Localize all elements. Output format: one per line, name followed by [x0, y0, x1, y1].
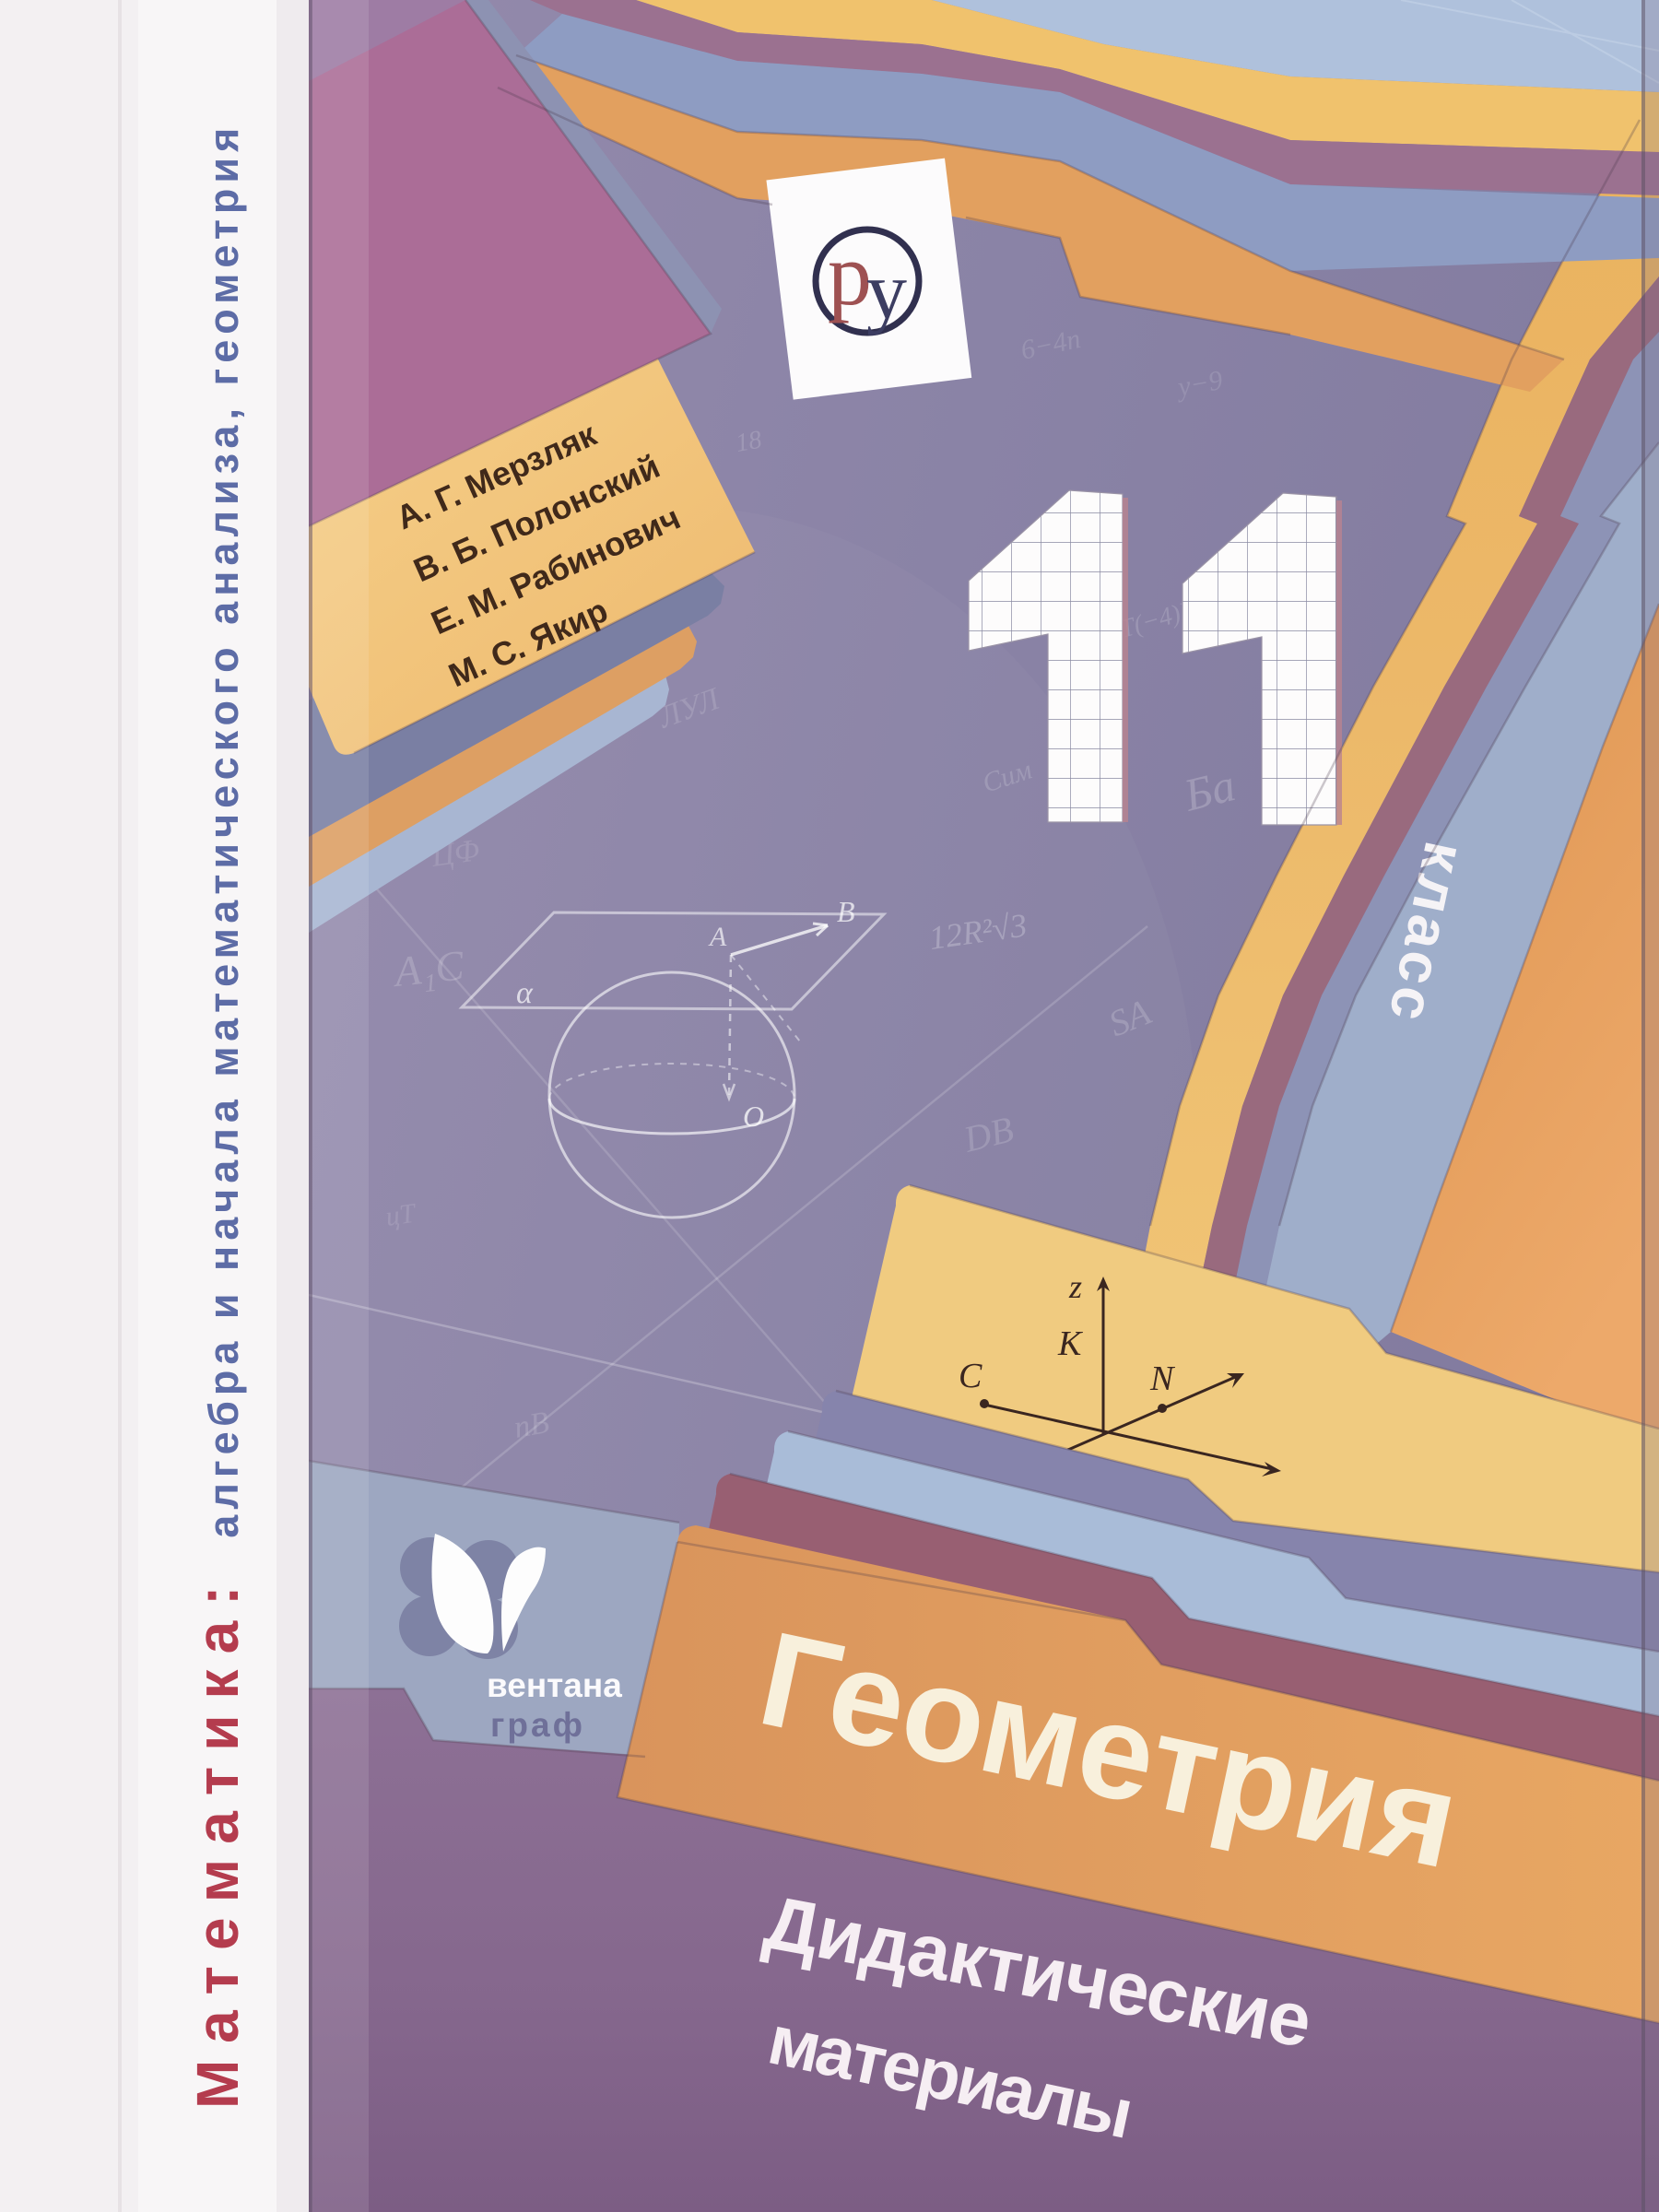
- svg-text:z: z: [1068, 1268, 1082, 1305]
- svg-text:18: 18: [734, 426, 764, 458]
- svg-text:р: р: [828, 225, 872, 324]
- svg-text:вентана: вентана: [487, 1666, 622, 1704]
- svg-text:B: B: [837, 895, 855, 928]
- svg-text:O: O: [743, 1100, 764, 1133]
- svg-text:граф: граф: [490, 1706, 585, 1744]
- svg-text:пВ: пВ: [512, 1406, 552, 1445]
- svg-text:C: C: [959, 1357, 982, 1395]
- svg-text:K: K: [1057, 1324, 1083, 1363]
- svg-text:α: α: [516, 976, 534, 1010]
- svg-text:A: A: [708, 922, 727, 952]
- svg-text:у: у: [866, 247, 907, 336]
- svg-text:N: N: [1149, 1359, 1176, 1398]
- svg-text:А₁С: А₁С: [390, 941, 467, 995]
